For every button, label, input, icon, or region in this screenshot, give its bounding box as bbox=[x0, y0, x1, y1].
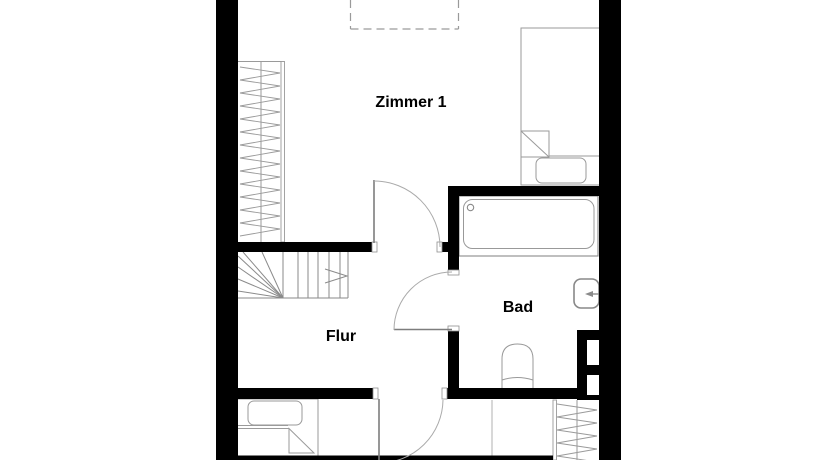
shaft-niche-2 bbox=[587, 375, 599, 395]
pillow bbox=[536, 158, 586, 183]
wall-right bbox=[599, 0, 621, 460]
wall-flur-south bbox=[216, 388, 373, 399]
room-label-bad: Bad bbox=[503, 299, 533, 316]
wall-bath-south bbox=[447, 388, 599, 399]
shaft-niche-1 bbox=[587, 340, 599, 365]
wall-bath-west-lower bbox=[448, 331, 459, 389]
toilet bbox=[502, 344, 533, 390]
room-label-flur: Flur bbox=[326, 328, 356, 345]
room-label-zimmer1: Zimmer 1 bbox=[375, 94, 446, 111]
pillow bbox=[248, 401, 302, 425]
floor-plan-canvas: Zimmer 1 Flur Bad bbox=[0, 0, 830, 460]
wall-stair-north bbox=[216, 242, 372, 252]
bathtub bbox=[459, 196, 598, 256]
wall-bottom-crop bbox=[216, 456, 553, 460]
background bbox=[0, 0, 830, 460]
floor-plan-page: Zimmer 1 Flur Bad bbox=[0, 0, 830, 460]
chimney-shaft bbox=[577, 330, 599, 400]
washbasin bbox=[574, 279, 599, 308]
wall-bath-west-upper bbox=[448, 187, 459, 271]
bed-top-right bbox=[521, 28, 600, 185]
wall-bath-north bbox=[448, 186, 599, 196]
